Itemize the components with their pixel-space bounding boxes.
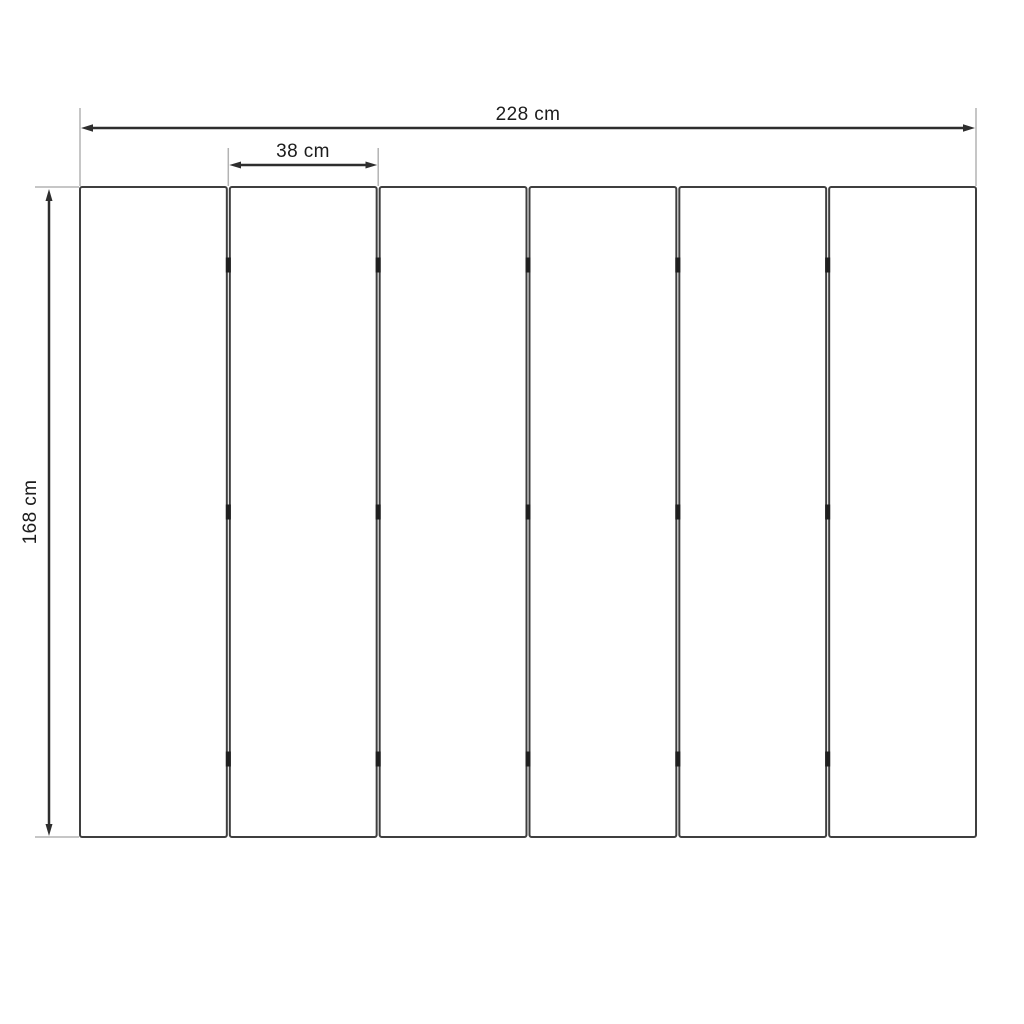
hinge-joint2-row2	[376, 505, 381, 520]
arrowhead-panel-width-left	[229, 162, 241, 169]
arrowhead-total-width-left	[81, 124, 93, 131]
arrowhead-height-bottom	[46, 824, 53, 836]
divider-panel-6	[829, 187, 976, 837]
dimension-total-width: 228 cm	[81, 104, 975, 132]
hinge-joint5-row2	[825, 505, 830, 520]
hinge-joint4-row1	[675, 258, 680, 273]
hinge-joint5-row3	[825, 752, 830, 767]
hinge-joint4-row2	[675, 505, 680, 520]
dimension-height: 168 cm	[20, 189, 53, 836]
hinge-joint1-row1	[226, 258, 231, 273]
hinge-joint2-row1	[376, 258, 381, 273]
arrowhead-panel-width-right	[366, 162, 378, 169]
divider-panel-1	[80, 187, 227, 837]
technical-drawing-canvas: 228 cm 38 cm 168 cm	[0, 0, 1024, 1024]
divider-dimension-drawing: 228 cm 38 cm 168 cm	[0, 0, 1024, 1024]
dimension-label-panel-width: 38 cm	[276, 141, 330, 162]
divider-panel-2	[230, 187, 377, 837]
hinge-joint3-row2	[526, 505, 531, 520]
arrowhead-height-top	[46, 189, 53, 201]
dimension-label-total-width: 228 cm	[496, 104, 561, 125]
divider-panel-4	[530, 187, 677, 837]
hinge-joint5-row1	[825, 258, 830, 273]
hinge-joint4-row3	[675, 752, 680, 767]
divider-panel-5	[679, 187, 826, 837]
hinge-joint1-row2	[226, 505, 231, 520]
hinge-joint3-row1	[526, 258, 531, 273]
hinge-joint3-row3	[526, 752, 531, 767]
hinge-joint2-row3	[376, 752, 381, 767]
hinge-joint1-row3	[226, 752, 231, 767]
dimension-panel-width: 38 cm	[229, 141, 377, 169]
dimension-label-height: 168 cm	[20, 480, 41, 545]
arrowhead-total-width-right	[963, 124, 975, 131]
divider-panel-3	[380, 187, 527, 837]
